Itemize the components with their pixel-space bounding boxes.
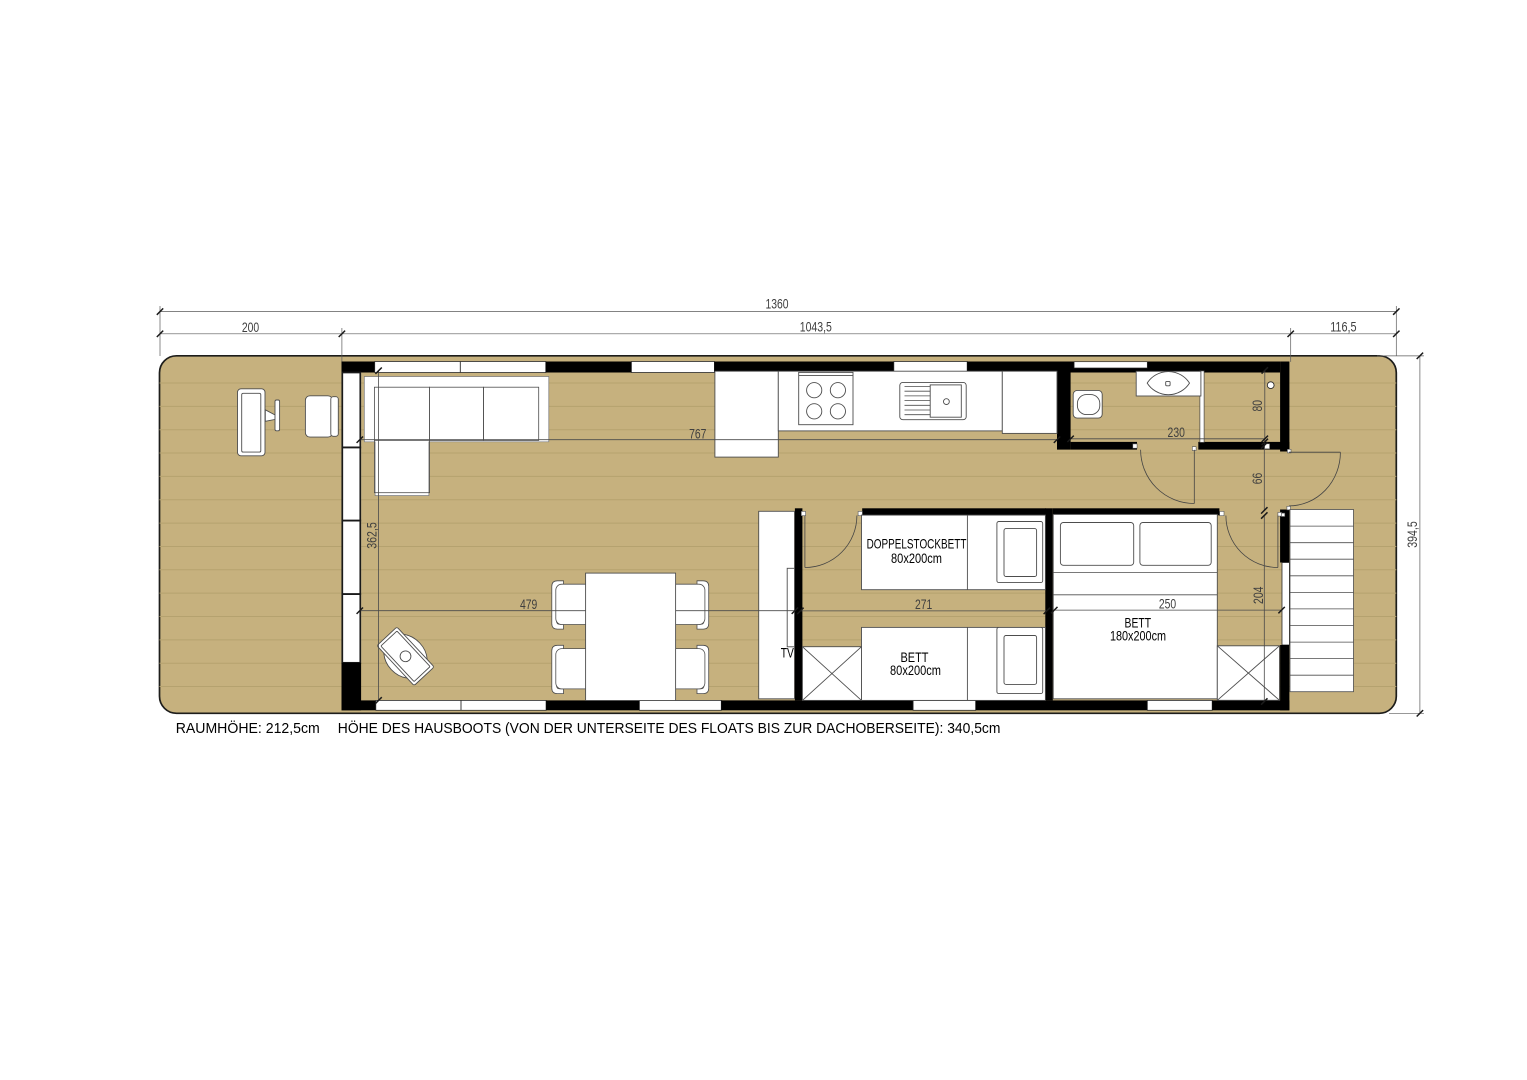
svg-text:362,5: 362,5 bbox=[363, 522, 379, 549]
svg-text:HÖHE DES HAUSBOOTS (VON DER UN: HÖHE DES HAUSBOOTS (VON DER UNTERSEITE D… bbox=[338, 719, 1001, 737]
svg-text:DOPPELSTOCKBETT: DOPPELSTOCKBETT bbox=[867, 536, 967, 552]
svg-text:1043,5: 1043,5 bbox=[800, 319, 832, 335]
svg-text:230: 230 bbox=[1168, 424, 1185, 440]
svg-text:66: 66 bbox=[1249, 473, 1265, 485]
svg-text:767: 767 bbox=[689, 425, 706, 441]
svg-text:180x200cm: 180x200cm bbox=[1110, 628, 1166, 644]
svg-text:80: 80 bbox=[1249, 400, 1265, 412]
svg-text:479: 479 bbox=[520, 596, 537, 612]
svg-text:80x200cm: 80x200cm bbox=[890, 662, 941, 678]
svg-text:200: 200 bbox=[242, 319, 259, 335]
svg-text:116,5: 116,5 bbox=[1330, 319, 1357, 335]
svg-text:394,5: 394,5 bbox=[1404, 521, 1420, 548]
svg-text:80x200cm: 80x200cm bbox=[891, 550, 942, 566]
svg-text:1360: 1360 bbox=[765, 296, 788, 312]
svg-text:TV: TV bbox=[781, 645, 795, 661]
svg-text:204: 204 bbox=[1250, 586, 1266, 603]
svg-text:250: 250 bbox=[1159, 595, 1176, 611]
svg-text:271: 271 bbox=[915, 596, 932, 612]
svg-text:RAUMHÖHE: 212,5cm: RAUMHÖHE: 212,5cm bbox=[176, 719, 320, 737]
